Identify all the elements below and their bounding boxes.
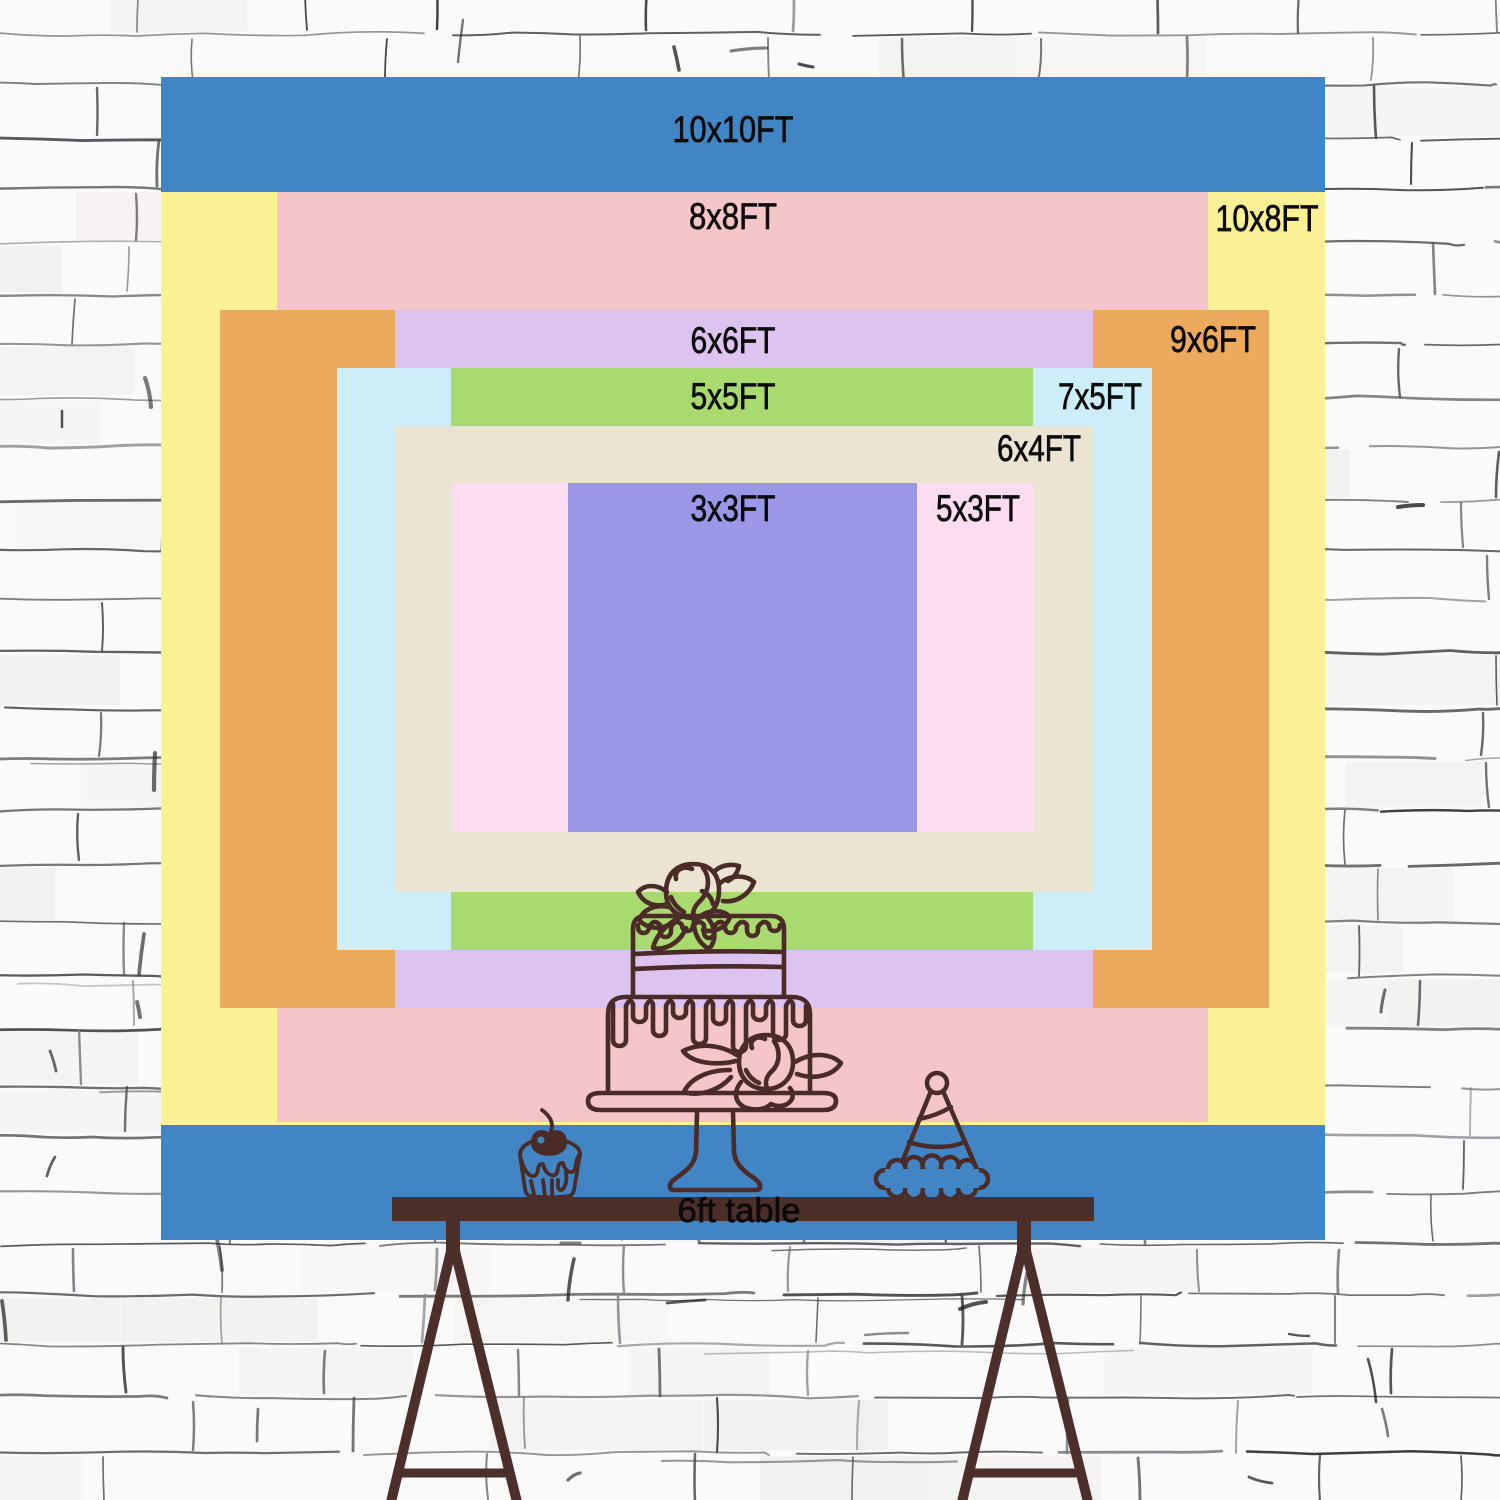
- svg-text:8x8FT: 8x8FT: [689, 196, 777, 237]
- svg-text:5x3FT: 5x3FT: [936, 488, 1020, 529]
- svg-text:10x8FT: 10x8FT: [1216, 198, 1319, 239]
- svg-text:6x6FT: 6x6FT: [691, 320, 776, 361]
- svg-text:7x5FT: 7x5FT: [1058, 376, 1142, 417]
- svg-text:9x6FT: 9x6FT: [1170, 319, 1256, 360]
- svg-text:6ft table: 6ft table: [678, 1192, 801, 1230]
- svg-text:6x4FT: 6x4FT: [997, 428, 1081, 469]
- svg-text:5x5FT: 5x5FT: [691, 376, 776, 417]
- svg-text:10x10FT: 10x10FT: [673, 109, 794, 150]
- svg-text:3x3FT: 3x3FT: [691, 488, 776, 529]
